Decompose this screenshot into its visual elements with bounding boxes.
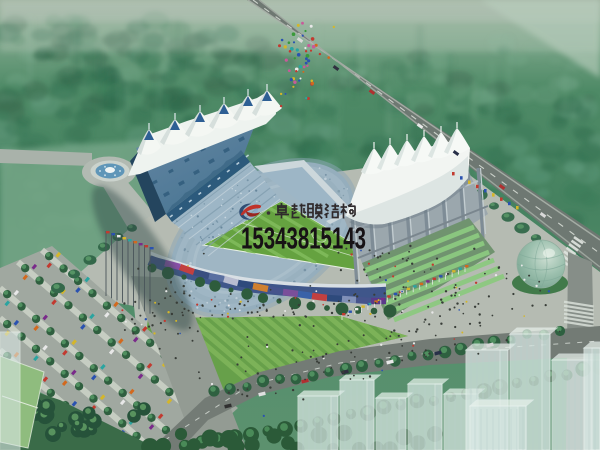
svg-text:15343815143: 15343815143 bbox=[241, 222, 366, 256]
